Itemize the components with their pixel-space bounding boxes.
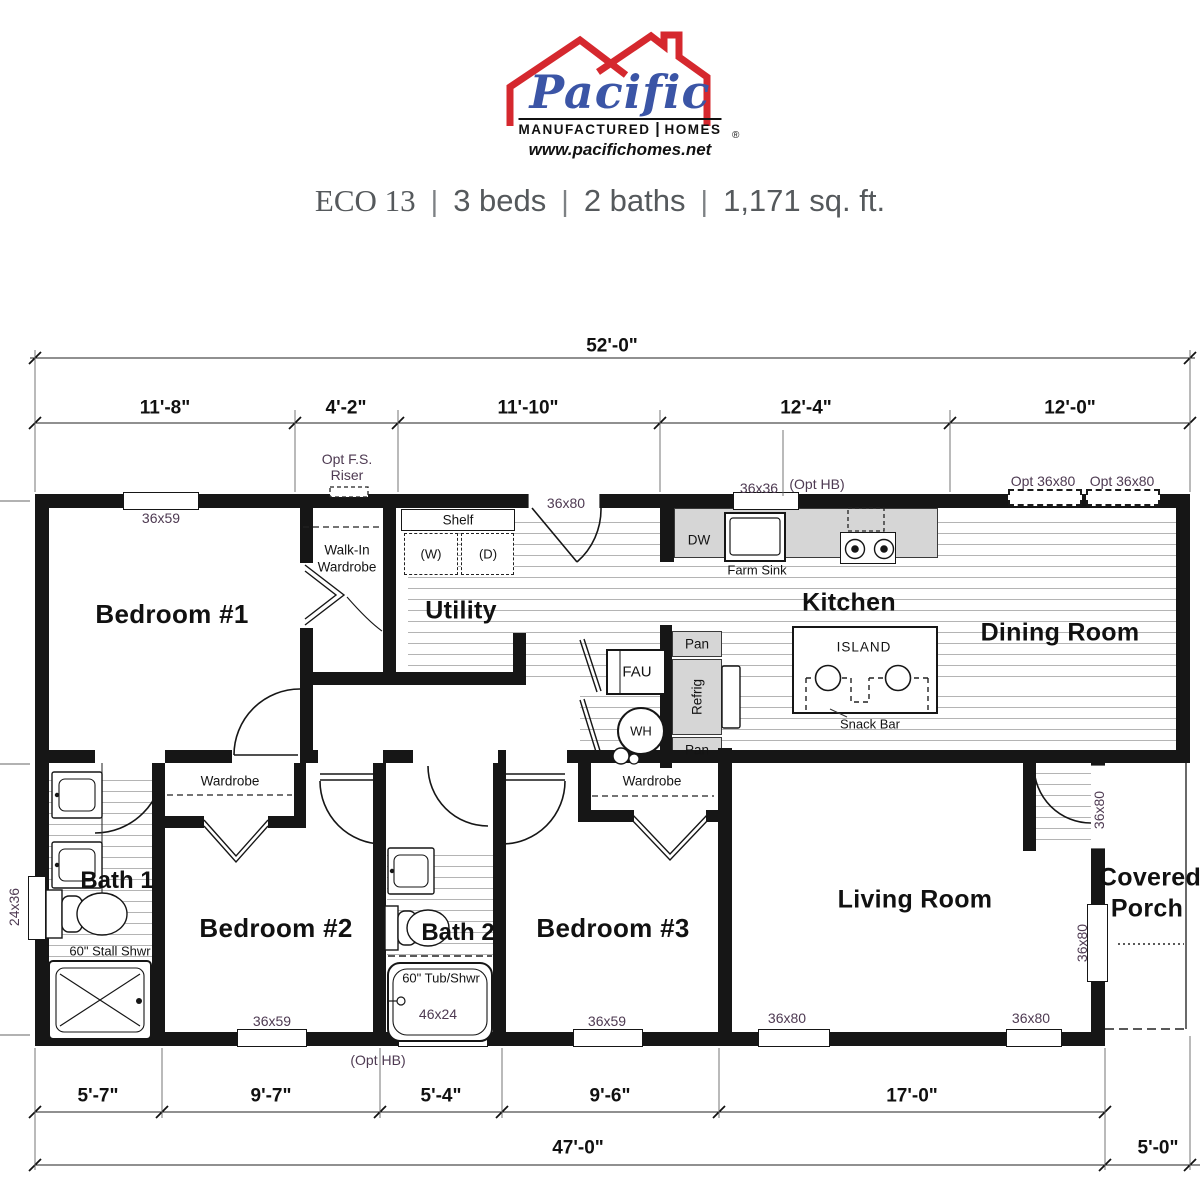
shelf-label: Shelf [443, 513, 474, 527]
room-label-bedroom1: Bedroom #1 [95, 601, 248, 627]
walkin-label-2: Wardrobe [318, 560, 377, 574]
refrigerator-label: Refrig [690, 679, 704, 715]
room-label-porch-1: Covered [1099, 866, 1200, 891]
dim-top-4: 12'-4" [780, 399, 832, 418]
washer-label: (W) [421, 548, 442, 561]
pantry-label-2: Pan [685, 743, 709, 757]
room-label-porch-2: Porch [1111, 897, 1183, 922]
water-heater-label: WH [630, 725, 652, 738]
dim-bottom-4: 9'-6" [590, 1087, 631, 1106]
wardrobe3-label: Wardrobe [623, 774, 682, 788]
room-label-dining: Dining Room [981, 621, 1140, 646]
dryer-label: (D) [479, 548, 497, 561]
window-label-living1: 36x80 [768, 1011, 806, 1025]
window-label-bedroom2: 36x59 [253, 1014, 291, 1028]
farm-sink-label: Farm Sink [727, 564, 786, 577]
opt-hb-label-bottom: (Opt HB) [350, 1053, 405, 1067]
opt-riser-label-2: Riser [331, 468, 364, 482]
window-label-bath2: 46x24 [419, 1007, 457, 1021]
wardrobe2-label: Wardrobe [201, 774, 260, 788]
stall-shower-label: 60" Stall Shwr [69, 945, 150, 958]
fau-label: FAU [622, 665, 651, 680]
tub-shower-label: 60" Tub/Shwr [402, 972, 480, 985]
door-label-entry: 36x80 [1092, 791, 1106, 829]
room-label-kitchen: Kitchen [802, 591, 896, 616]
opt-riser-label-1: Opt F.S. [322, 452, 373, 466]
dishwasher-label: DW [688, 533, 711, 547]
opt-hb-label-top: (Opt HB) [789, 477, 844, 491]
window-label-bedroom1: 36x59 [142, 511, 180, 525]
window-label-living2: 36x80 [1012, 1011, 1050, 1025]
window-label-kitchen: 36x36 [740, 481, 778, 495]
dim-bottom-5: 17'-0" [886, 1087, 938, 1106]
walkin-label-1: Walk-In [324, 543, 369, 557]
dim-bottom-porch: 5'-0" [1138, 1139, 1179, 1158]
dim-bottom-2: 9'-7" [251, 1087, 292, 1106]
window-label-living-side: 36x80 [1075, 924, 1089, 962]
dim-top-2: 4'-2" [326, 399, 367, 418]
pantry-label-1: Pan [685, 637, 709, 651]
window-label-bedroom3: 36x59 [588, 1014, 626, 1028]
dim-bottom-1: 5'-7" [78, 1087, 119, 1106]
room-label-bath2: Bath 2 [421, 921, 494, 945]
dim-top-1: 11'-8" [140, 399, 191, 418]
room-label-living: Living Room [838, 888, 993, 913]
dim-bottom-3: 5'-4" [421, 1087, 462, 1106]
dim-overall-top: 52'-0" [586, 337, 638, 356]
island-label: ISLAND [837, 640, 892, 654]
room-label-bedroom2: Bedroom #2 [199, 915, 352, 941]
room-label-bath1: Bath 1 [80, 869, 153, 893]
opt-door-label-2: Opt 36x80 [1090, 474, 1155, 488]
dim-top-5: 12'-0" [1044, 399, 1096, 418]
floorplan-page: Pacific MANUFACTURED HOMES ® www.pacific… [0, 0, 1200, 1200]
dim-top-3: 11'-10" [497, 399, 558, 418]
room-label-bedroom3: Bedroom #3 [536, 915, 689, 941]
opt-door-label-1: Opt 36x80 [1011, 474, 1076, 488]
door-label-utility: 36x80 [547, 496, 585, 510]
snack-bar-label: Snack Bar [840, 718, 900, 731]
room-label-utility: Utility [425, 599, 497, 624]
dim-bottom-main: 47'-0" [552, 1139, 604, 1158]
window-label-bath1: 24x36 [7, 888, 21, 926]
